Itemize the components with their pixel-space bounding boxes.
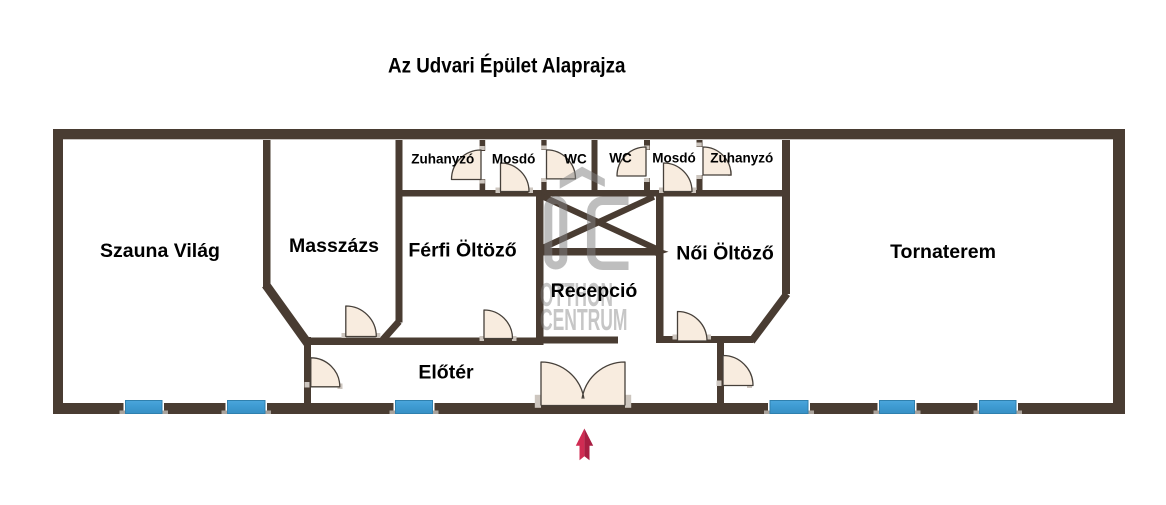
- svg-text:CENTRUM: CENTRUM: [540, 303, 628, 337]
- svg-text:Mosdó: Mosdó: [652, 151, 696, 166]
- svg-text:Zuhanyzó: Zuhanyzó: [411, 152, 474, 167]
- svg-text:Férfi Öltöző: Férfi Öltöző: [408, 239, 516, 262]
- svg-text:WC: WC: [564, 152, 587, 167]
- svg-text:Női Öltöző: Női Öltöző: [676, 242, 774, 265]
- svg-text:Szauna Világ: Szauna Világ: [100, 240, 220, 262]
- svg-text:Mosdó: Mosdó: [492, 152, 536, 167]
- svg-text:Zuhanyzó: Zuhanyzó: [710, 151, 773, 166]
- svg-text:Recepció: Recepció: [551, 280, 638, 302]
- svg-text:Az Udvari Épület Alaprajza: Az Udvari Épület Alaprajza: [388, 55, 626, 78]
- svg-text:Tornaterem: Tornaterem: [890, 241, 996, 263]
- svg-text:WC: WC: [609, 151, 632, 166]
- svg-text:Masszázs: Masszázs: [289, 235, 379, 257]
- svg-text:Előtér: Előtér: [418, 362, 474, 384]
